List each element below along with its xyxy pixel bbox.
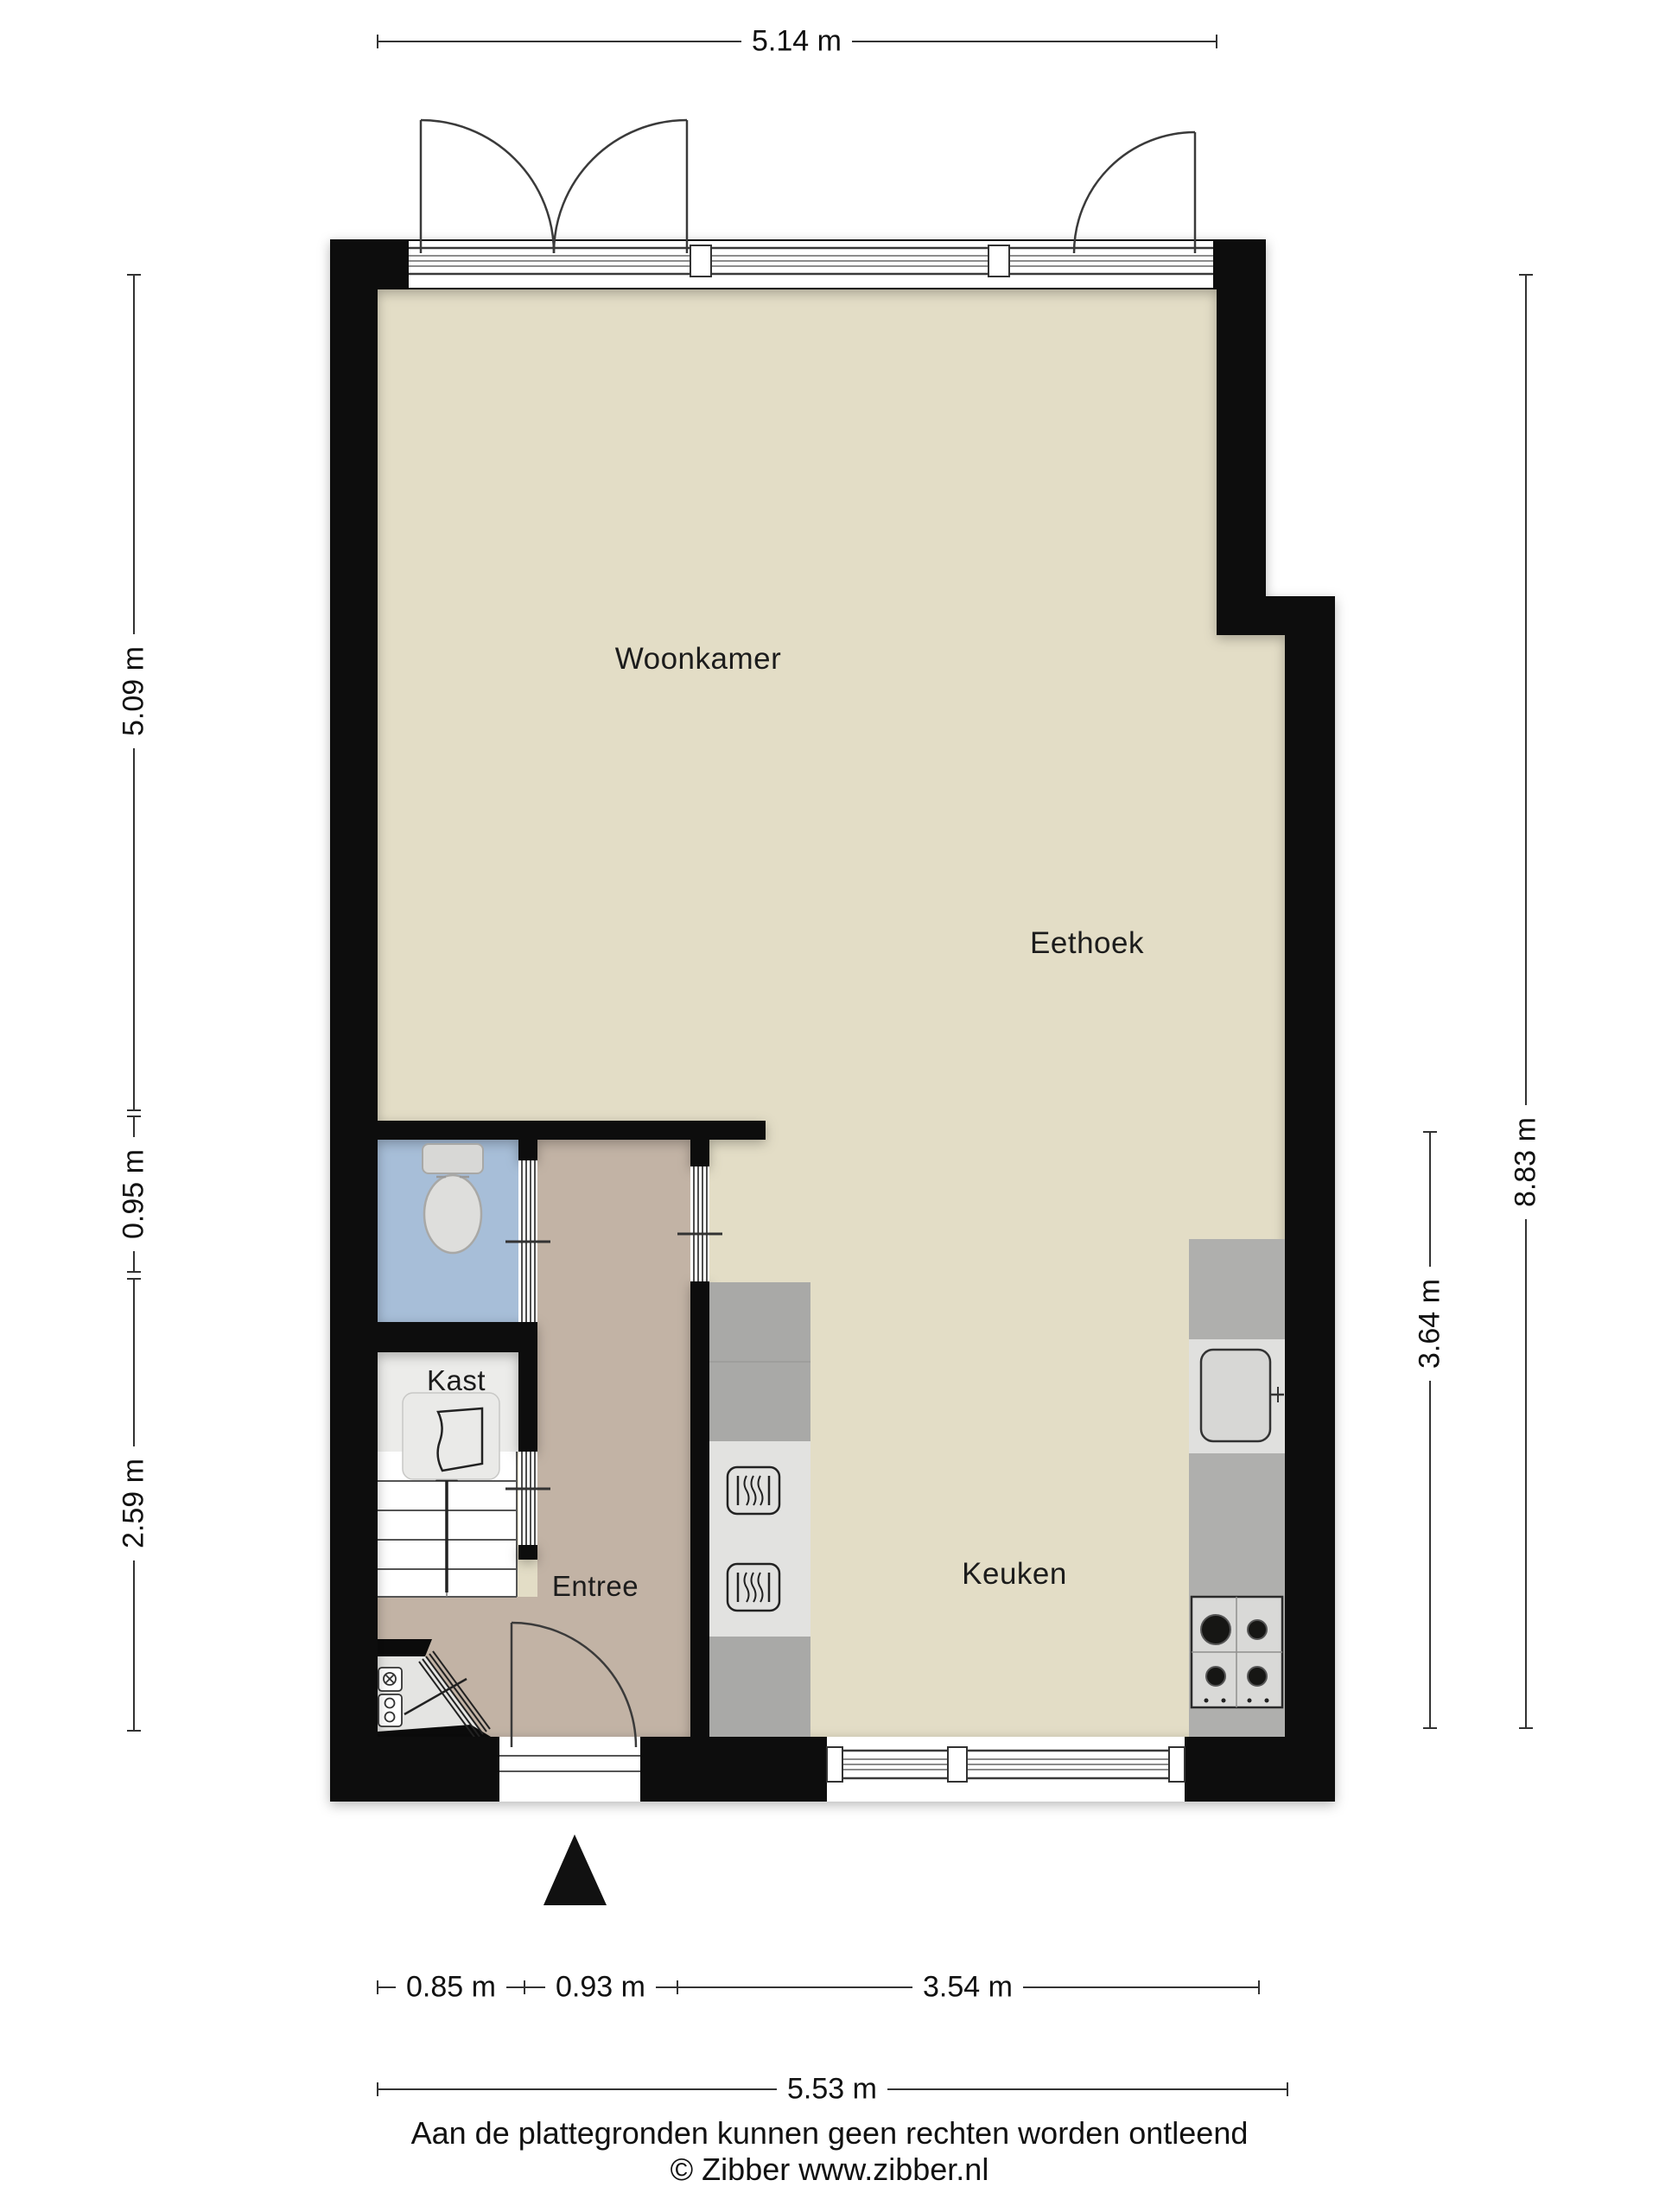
wall-post-kast-door (518, 1545, 537, 1560)
dim-left-seg1: 5.09 m (118, 634, 151, 748)
footer-disclaimer: Aan de plattegronden kunnen geen rechten… (259, 2115, 1400, 2152)
dim-bottom-seg3: 3.54 m (912, 1971, 1023, 2005)
opening-front-door (499, 1737, 640, 1802)
wall-post-hall-door (690, 1140, 709, 1166)
floor-entree-hall (537, 1140, 690, 1597)
window-mullion (948, 1747, 967, 1782)
dim-bottom-seg2: 0.93 m (545, 1971, 656, 2005)
dim-bottom-seg1: 0.85 m (396, 1971, 506, 2005)
room-label-woonkamer: Woonkamer (615, 642, 782, 677)
room-label-eethoek: Eethoek (1030, 926, 1144, 961)
floorplan-page: Woonkamer Eethoek Keuken Entree Kast 5.1… (0, 0, 1659, 2212)
wall-left (330, 239, 378, 1802)
room-label-keuken: Keuken (962, 1557, 1067, 1592)
meter-cupboard-wall-stub (378, 1639, 432, 1656)
wall-right-lower (1285, 596, 1335, 1802)
wall-kast-east (518, 1352, 537, 1452)
wall-right-upper (1217, 239, 1266, 635)
kitchen-counter (1189, 1239, 1285, 1737)
dim-left-seg3: 2.59 m (118, 1446, 151, 1560)
dim-right-total: 8.83 m (1510, 1105, 1543, 1219)
wall-entree-keuken (690, 1281, 709, 1737)
dim-bottom-total: 5.53 m (777, 2073, 887, 2107)
electric-panel-icon (378, 1668, 402, 1726)
garden-single-door (1074, 132, 1195, 253)
kitchen-tall-cabinets (709, 1282, 810, 1737)
entrance-arrow-icon (543, 1834, 607, 1905)
floorplan-drawing (0, 0, 1659, 2212)
stove-icon (1192, 1597, 1282, 1707)
french-doors (421, 120, 687, 253)
room-label-kast: Kast (427, 1364, 486, 1397)
wall-toilet-north (378, 1121, 766, 1140)
room-label-entree: Entree (552, 1570, 639, 1603)
window-mullion (690, 245, 711, 276)
footer-copyright: © Zibber www.zibber.nl (259, 2152, 1400, 2188)
dim-top-width: 5.14 m (741, 25, 852, 59)
boiler-icon (403, 1393, 499, 1479)
wall-toilet-south (378, 1322, 537, 1352)
toilet-icon (423, 1144, 483, 1253)
dim-right-kitchen: 3.64 m (1414, 1267, 1447, 1381)
wall-post-toilet-door (518, 1140, 537, 1160)
dim-left-seg2: 0.95 m (118, 1137, 151, 1251)
window-mullion (988, 245, 1009, 276)
